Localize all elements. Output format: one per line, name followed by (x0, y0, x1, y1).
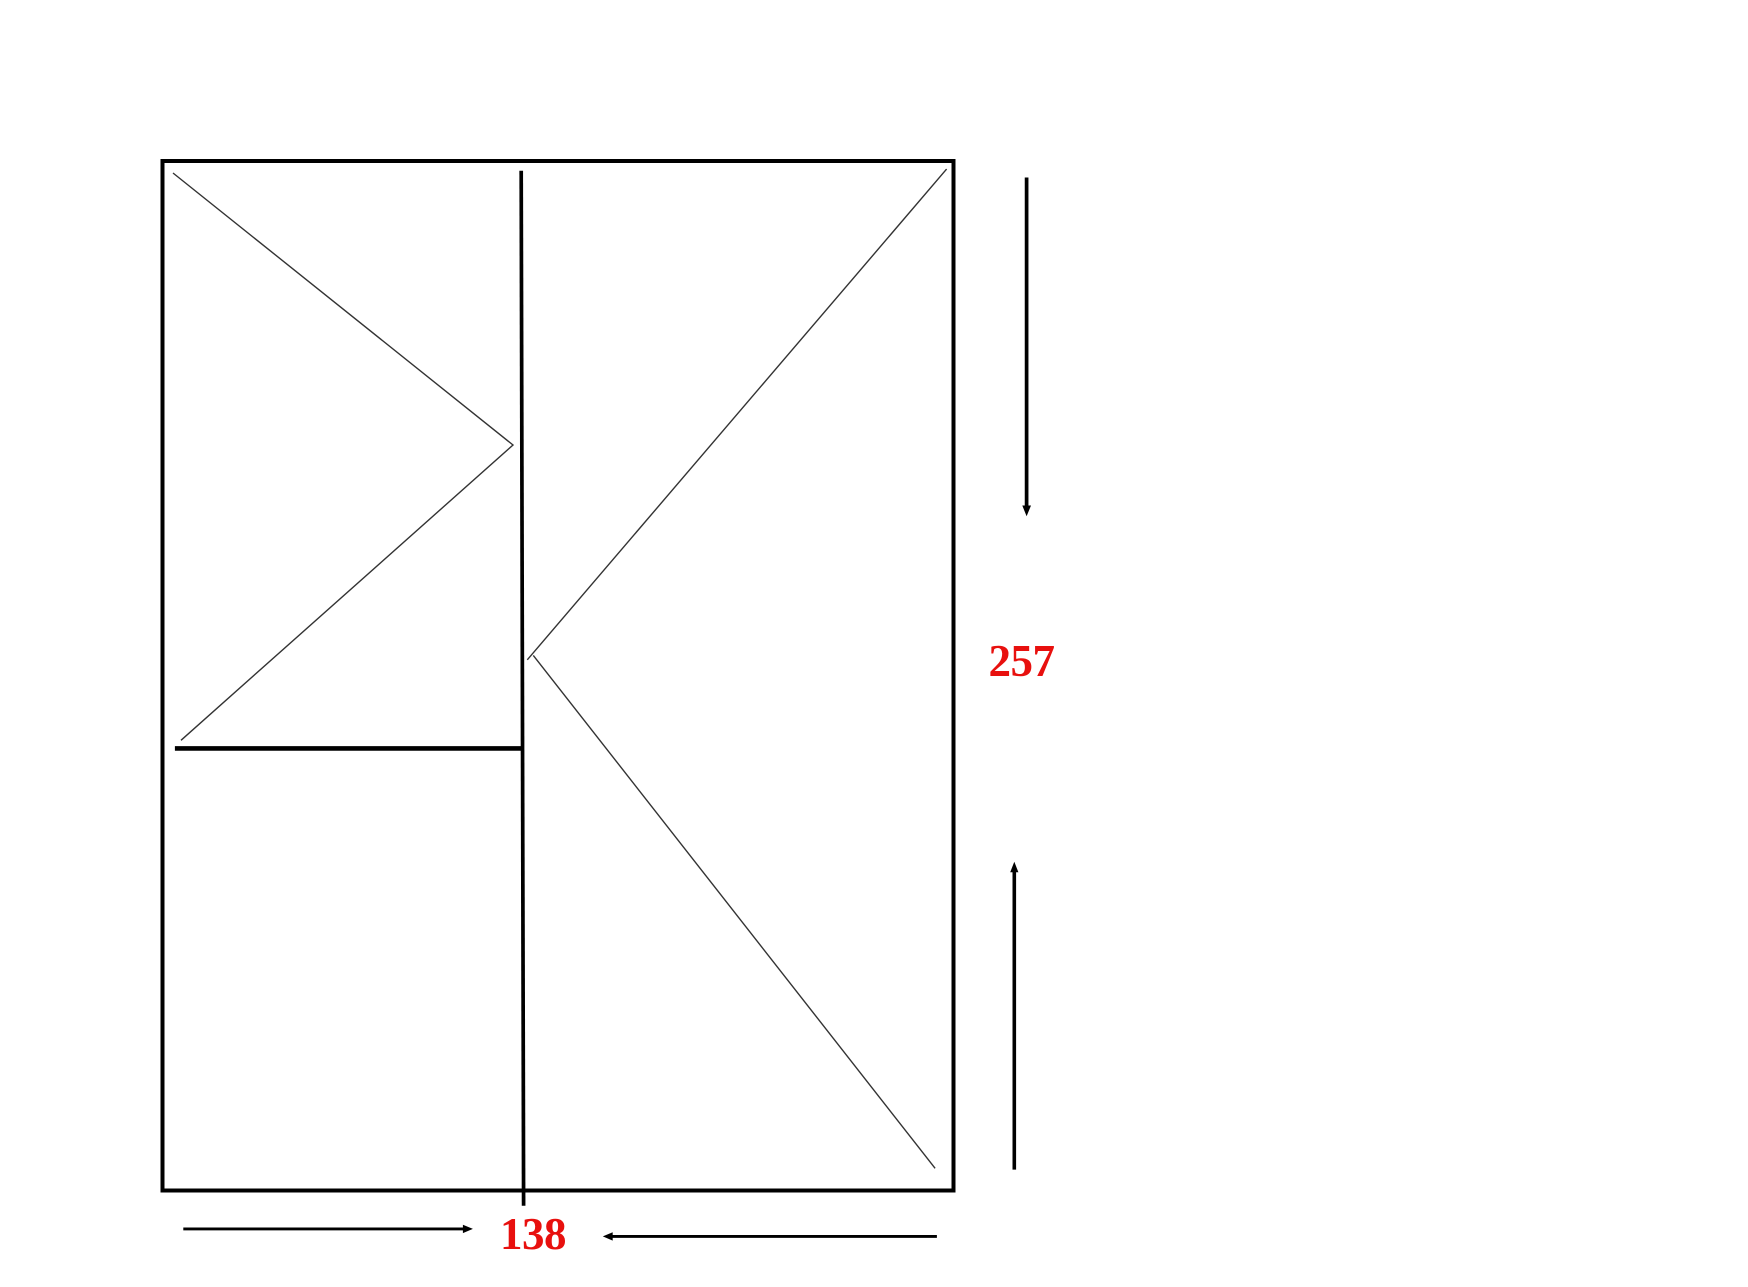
svg-text:257: 257 (989, 636, 1055, 686)
svg-text:138: 138 (500, 1209, 566, 1259)
